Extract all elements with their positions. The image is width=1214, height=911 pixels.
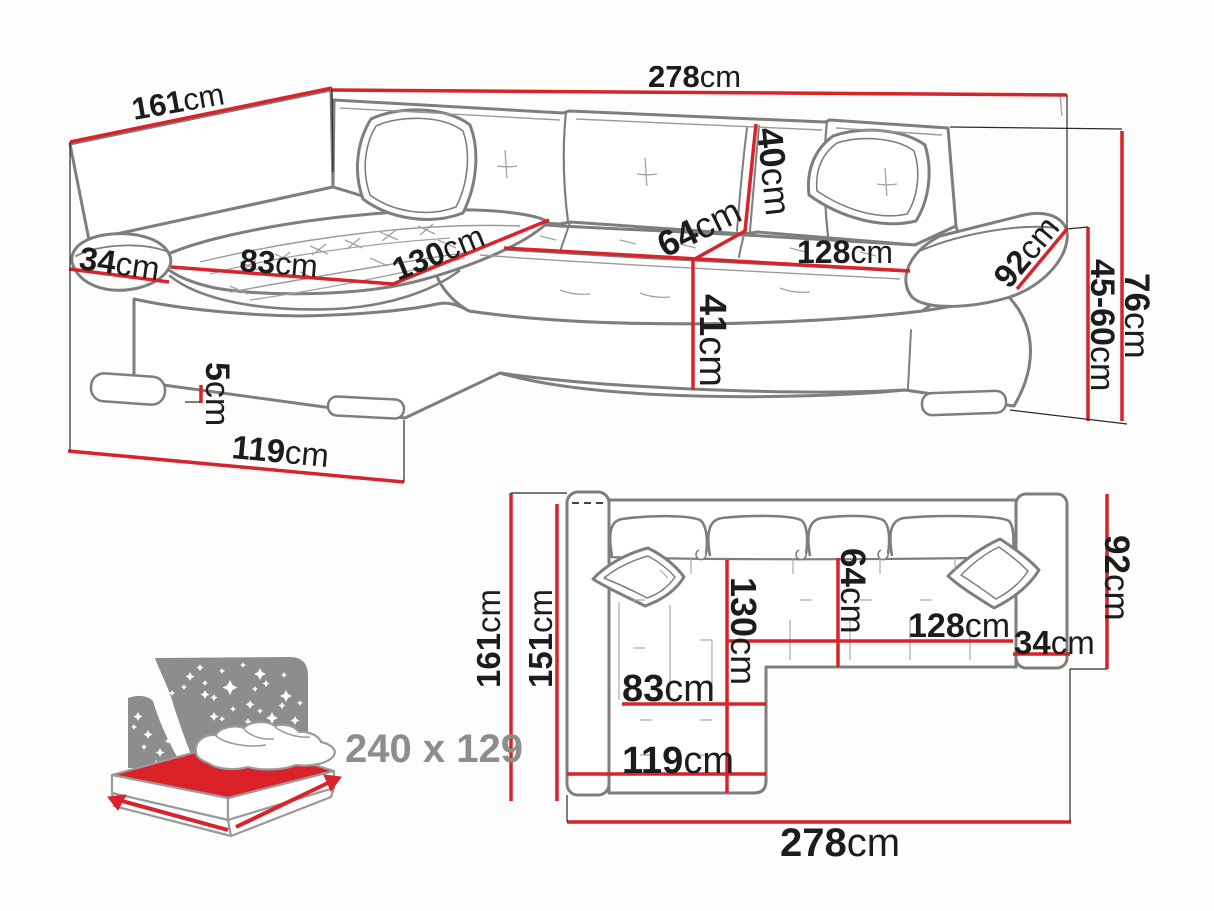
svg-text:83cm: 83cm [622, 668, 715, 710]
svg-text:278cm: 278cm [780, 821, 900, 865]
svg-text:128cm: 128cm [908, 607, 1010, 645]
svg-text:151cm: 151cm [522, 589, 559, 688]
svg-text:130cm: 130cm [723, 577, 764, 685]
svg-text:119cm: 119cm [622, 740, 734, 782]
svg-text:92cm: 92cm [1097, 535, 1136, 621]
svg-text:240 x 129: 240 x 129 [345, 727, 523, 771]
svg-text:45-60cm: 45-60cm [1083, 259, 1121, 391]
svg-text:83cm: 83cm [238, 242, 319, 284]
svg-text:128cm: 128cm [797, 234, 893, 270]
svg-text:76cm: 76cm [1117, 273, 1156, 359]
svg-text:34cm: 34cm [1014, 624, 1095, 661]
svg-text:278cm: 278cm [648, 59, 741, 94]
svg-text:41cm: 41cm [691, 294, 733, 387]
svg-text:5cm: 5cm [198, 362, 236, 426]
svg-text:161cm: 161cm [470, 589, 507, 688]
svg-text:64cm: 64cm [833, 548, 872, 634]
